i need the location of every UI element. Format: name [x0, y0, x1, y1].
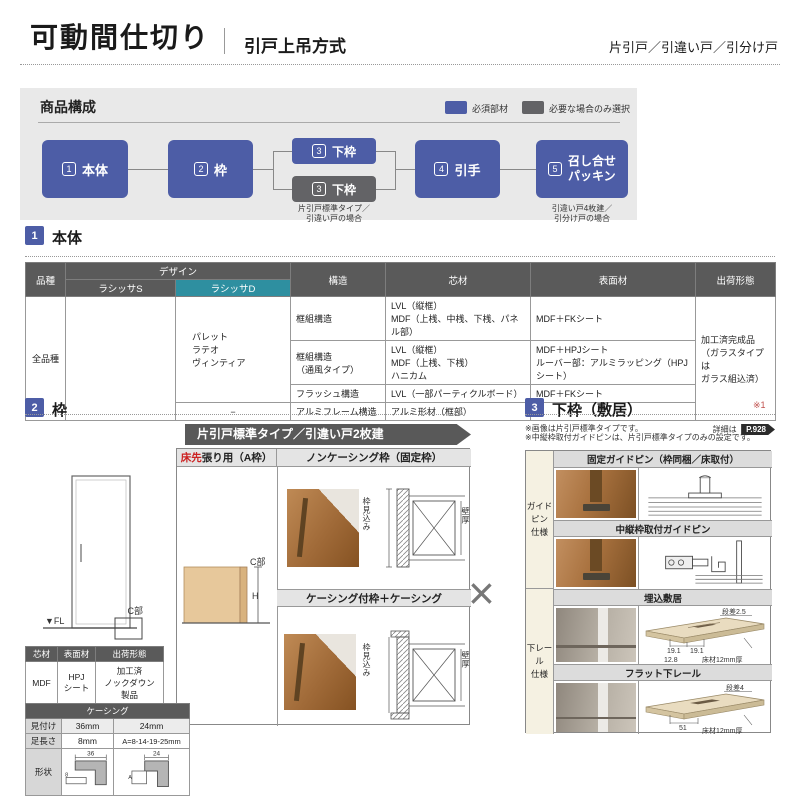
photo-guide-pin: [583, 504, 610, 512]
umekomi-photo: [556, 608, 636, 662]
cell-lasissa-s: [66, 297, 176, 421]
cell-kouzou: 框組構造: [291, 297, 386, 341]
flow-connector: [273, 151, 292, 152]
section1-badge: 1: [25, 226, 44, 245]
legend-required-label: 必須部材: [472, 102, 508, 115]
frame-type-banner: 片引戸標準タイプ／引違い戸2枚建: [185, 424, 471, 445]
cell-hyomen: MDF＋HPJシート ルーバー部：アルミラッピング（HPJシート）: [531, 341, 696, 385]
material-hyomen: HPJ シート: [58, 662, 96, 704]
cell-kouzou: フラッシュ構造: [291, 385, 386, 403]
row-group-shitarail: 下レール 仕様: [526, 589, 554, 734]
flat-rail-diagram: 段差4 51 床材12mm厚: [640, 681, 770, 734]
flow-connector: [395, 151, 396, 190]
casing-frame-photo: [284, 634, 356, 710]
photo-frame-post: [590, 470, 603, 502]
cell-shinzai: LVL（一部パーティクルボード）: [386, 385, 531, 403]
header-umekomi: 埋込敷居: [554, 589, 772, 606]
page-subtitle: 引戸上吊方式: [244, 32, 346, 57]
hontai-spec-table: 品種 デザイン 構造 芯材 表面材 出荷形態 ラシッサS ラシッサD 全品種 パ…: [25, 262, 776, 421]
c-section-label: C部: [250, 557, 266, 567]
casing-ashinagasa-24: A=8-14-19-25mm: [114, 734, 190, 749]
cell-kouzou: 框組構造 （通風タイプ）: [291, 341, 386, 385]
casing-header: ケーシング付枠＋ケーシング: [277, 589, 471, 607]
casing-row-keijou: 形状: [26, 749, 62, 796]
wall-thickness-label: 壁厚: [460, 651, 471, 668]
col-header-shinzai: 芯材: [386, 263, 531, 297]
wall-thickness-label: 壁厚: [460, 507, 471, 524]
dim-24: 24: [153, 750, 161, 757]
col-header-hinshu: 品種: [26, 263, 66, 297]
flow-connector: [500, 169, 536, 170]
cell-shinzai: アルミ形材（框部）: [386, 403, 531, 421]
casing-shape-24-cell: 24 A: [114, 749, 190, 796]
flow-caption-packing: 引違い戸4枚建／ 引分け戸の場合: [522, 204, 642, 225]
cell-shinzai: LVL（縦框） MDF（上桟、下桟） ハニカム: [386, 341, 531, 385]
row-divider: [638, 606, 639, 664]
node-number: 3: [312, 144, 326, 158]
h-dimension-label: H: [252, 591, 259, 601]
header-rule: [20, 64, 780, 65]
section2-rule: [25, 414, 465, 415]
photo-door-edge: [598, 608, 608, 662]
header-fixed-guidepin: 固定ガイドピン（枠同梱／床取付）: [554, 451, 772, 468]
c-section-callout-label: C部: [128, 605, 144, 616]
photo-frame-post: [590, 539, 603, 571]
node-label: 下枠: [332, 181, 356, 198]
dim-a: A: [128, 775, 132, 781]
umekomi-diagram: 段差2.5 19.1 19.1 12.8 床材12mm厚: [640, 606, 770, 664]
title-divider: [224, 28, 225, 54]
header-center-guidepin: 中縦枠取付ガイドピン: [554, 520, 772, 537]
row-divider: [638, 468, 639, 520]
casing-row-mitsuke: 見付け: [26, 719, 62, 734]
dim-19-1-left: 19.1: [667, 648, 681, 655]
cell-hyomen: MDF＋FKシート: [531, 297, 696, 341]
frame-col1-header: 床先張り用（A枠）: [177, 449, 277, 467]
frame-material-table: 芯材 表面材 出荷形態 MDF HPJ シート 加工済 ノックダウン 製品: [25, 646, 164, 704]
section3-rule: [525, 414, 775, 415]
material-col-shukka: 出荷形態: [96, 647, 164, 662]
col-header-design: デザイン: [66, 263, 291, 280]
door-elevation-diagram: ▼FL C部: [35, 470, 170, 648]
combination-x-mark: ×: [468, 566, 495, 620]
dim-19-1-right: 19.1: [690, 648, 704, 655]
section3-title: 下枠（敷居）: [552, 399, 642, 420]
frame-depth-label: 枠見込み: [361, 643, 372, 677]
flow-connector: [128, 169, 168, 170]
col-header-hyomenzai: 表面材: [531, 263, 696, 297]
catalog-page: 可動間仕切り 引戸上吊方式 片引戸／引違い戸／引分け戸 商品構成 必須部材 必要…: [0, 0, 800, 800]
flow-node-waku: 2 枠: [168, 140, 253, 198]
reference-mark: ※1: [753, 400, 766, 411]
c-section-detail-diagram: H C部: [182, 557, 274, 639]
frame-spec-table: 床先張り用（A枠） ノンケーシング枠（固定枠） H C部: [176, 448, 470, 725]
dansa-label: 段差4: [726, 683, 744, 692]
center-guidepin-photo: [556, 539, 636, 587]
flow-caption-shitawaku: 片引戸標準タイプ／ 引違い戸の場合: [274, 204, 394, 225]
frame-col1-header-rest: 張り用（A枠）: [202, 450, 273, 465]
flow-node-hikite: 4 引手: [415, 140, 500, 198]
casing-ashinagasa-36: 8mm: [62, 734, 114, 749]
flow-node-shitawaku-required: 3 下枠: [292, 138, 376, 164]
tokosaki-red-text: 床先: [181, 450, 202, 465]
noncasing-header: ノンケーシング枠（固定枠）: [277, 449, 471, 467]
photo-frame-edge: [294, 643, 305, 701]
fl-label: ▼FL: [45, 616, 64, 626]
col-header-kouzou: 構造: [291, 263, 386, 297]
casing-row-ashinagasa: 足長さ: [26, 734, 62, 749]
photo-frame-edge: [297, 498, 308, 557]
frame-depth-label: 枠見込み: [361, 497, 372, 531]
flow-connector: [253, 169, 273, 170]
dansa-label: 段差2.5: [722, 607, 746, 616]
node-label: 本体: [82, 160, 108, 179]
photo-rail: [556, 717, 636, 719]
yukazai-label: 床材12mm厚: [702, 726, 742, 734]
legend-optional-swatch: [522, 101, 544, 114]
row-group-guidepin: ガイドピン 仕様: [526, 451, 554, 589]
material-shukka: 加工済 ノックダウン 製品: [96, 662, 164, 704]
node-number: 3: [312, 182, 326, 196]
door-type-list: 片引戸／引違い戸／引分け戸: [609, 37, 778, 56]
node-number: 1: [62, 162, 76, 176]
node-label: 下枠: [332, 143, 356, 160]
casing-mitsuke-36: 36mm: [62, 719, 114, 734]
noncasing-section-diagram: [373, 485, 465, 573]
dim-8: 8: [65, 772, 68, 778]
shitawaku-spec-table: ガイドピン 仕様 下レール 仕様 固定ガイドピン（枠同梱／床取付） 中縦枠取付ガ…: [525, 450, 771, 733]
flat-rail-photo: [556, 683, 636, 732]
noncasing-frame-photo: [287, 489, 359, 567]
flow-connector: [376, 189, 395, 190]
col-header-lasissa-d: ラシッサD: [176, 280, 291, 297]
node-label: 召し合せ パッキン: [568, 154, 616, 184]
casing-mitsuke-24: 24mm: [114, 719, 190, 734]
center-guidepin-diagram: [640, 539, 770, 587]
material-shinzai: MDF: [26, 662, 58, 704]
dim-36: 36: [87, 750, 95, 757]
flow-node-packing: 5 召し合せ パッキン: [536, 140, 628, 198]
flow-node-hontai: 1 本体: [42, 140, 128, 198]
flow-node-shitawaku-optional: 3 下枠: [292, 176, 376, 202]
cell-shinzai: LVL（縦框） MDF（上桟、中桟、下桟、パネル部）: [386, 297, 531, 341]
cell-lasissa-d: パレット ラテオ ヴィンティア: [176, 297, 291, 403]
header-flat-rail: フラット下レール: [554, 664, 772, 681]
node-number: 4: [434, 162, 448, 176]
casing-profile-24-diagram: 24 A: [127, 750, 177, 792]
casing-profile-36-diagram: 36 8: [63, 750, 113, 792]
col-header-shukka: 出荷形態: [696, 263, 776, 297]
product-composition-panel: 商品構成 必須部材 必要な場合のみ選択 1 本体 2 枠 3 下枠 3: [20, 88, 637, 220]
flow-connector: [273, 151, 274, 190]
fixed-guidepin-diagram: [640, 470, 770, 518]
node-number: 5: [548, 162, 562, 176]
casing-shape-36-cell: 36 8: [62, 749, 114, 796]
casing-section-diagram: [373, 629, 465, 721]
cell-lasissa-d-last: −: [176, 403, 291, 421]
photo-rail: [556, 645, 636, 648]
row-divider: [638, 681, 639, 734]
node-label: 枠: [214, 160, 227, 179]
row-divider: [638, 537, 639, 589]
material-col-hyomen: 表面材: [58, 647, 96, 662]
page-title: 可動間仕切り: [30, 16, 210, 56]
flow-connector: [376, 151, 395, 152]
cell-kouzou: アルミフレーム構造: [291, 403, 386, 421]
fixed-guidepin-photo: [556, 470, 636, 518]
node-number: 2: [194, 162, 208, 176]
col-header-lasissa-s: ラシッサS: [66, 280, 176, 297]
dim-51: 51: [679, 725, 687, 732]
legend-optional-label: 必要な場合のみ選択: [549, 102, 630, 115]
flow-connector: [273, 189, 292, 190]
node-label: 引手: [454, 160, 480, 179]
composition-title: 商品構成: [40, 97, 96, 117]
section2-title: 枠: [52, 399, 67, 420]
yukazai-label: 床材12mm厚: [702, 655, 742, 664]
flow-connector: [395, 169, 415, 170]
photo-guide-pin: [583, 573, 610, 581]
section1-rule: [25, 256, 775, 257]
material-col-shinzai: 芯材: [26, 647, 58, 662]
section1-title: 本体: [52, 227, 82, 248]
casing-table-title: ケーシング: [26, 704, 190, 719]
dim-12-8: 12.8: [664, 657, 678, 664]
legend-required-swatch: [445, 101, 467, 114]
composition-rule: [38, 122, 620, 123]
note-guidepin: ※中縦枠取付ガイドピンは、片引戸標準タイプのみの設定です。: [525, 432, 755, 443]
casing-spec-table: ケーシング 見付け 36mm 24mm 足長さ 8mm A=8-14-19-25…: [25, 703, 190, 796]
photo-door-edge: [598, 683, 608, 732]
